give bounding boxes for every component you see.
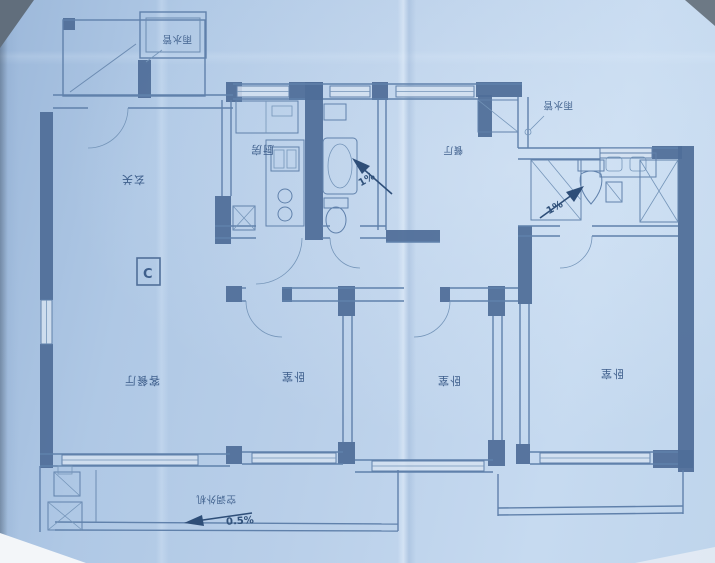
label-rain-pipe-right: 雨水管	[543, 99, 573, 111]
door-arc-kitchen	[256, 238, 302, 284]
door-arc-entry	[88, 108, 128, 148]
label-bedroom-mid: 卧室	[437, 374, 461, 388]
door-arc-bedroom-mid	[414, 301, 450, 337]
toilet-left	[324, 198, 348, 233]
unit-marker-text: C	[143, 267, 153, 282]
label-entry: 玄关	[121, 173, 145, 187]
label-kitchen: 厨房	[250, 143, 274, 156]
slope-arrow-master-bath	[540, 186, 584, 218]
windows-layer	[41, 86, 652, 471]
window-bath-left	[330, 86, 370, 97]
door-arc-bedroom-left	[246, 301, 282, 337]
window-kitchen	[237, 86, 289, 97]
closet-master	[640, 160, 678, 222]
unit-marker-box: C	[137, 258, 160, 285]
kitchen-fixtures	[233, 101, 304, 230]
door-arc-bath-left	[330, 238, 360, 268]
walls-thin-layer	[40, 12, 678, 472]
ac-platform	[48, 466, 82, 530]
window-living-bottom	[62, 455, 198, 465]
label-rain-pipe-left: 雨水管	[162, 33, 192, 45]
window-bed3-bottom	[372, 461, 484, 471]
window-bed2-bottom	[252, 453, 336, 463]
label-living-dining: 客餐厅	[124, 374, 160, 388]
leader-rain-right	[530, 116, 544, 130]
window-room4	[396, 86, 474, 97]
label-dining: 餐厅	[443, 144, 463, 156]
blueprint-photo: C 雨水管 雨水管 厨房 玄关 餐厅 客餐厅 卧室 卧室 卧室 1% 1% 空调…	[0, 0, 715, 563]
floorplan-svg: C 雨水管 雨水管 厨房 玄关 餐厅 客餐厅 卧室 卧室 卧室 1% 1% 空调…	[0, 0, 715, 563]
label-bedroom-left: 卧室	[281, 370, 305, 384]
label-bedroom-right: 卧室	[600, 367, 624, 381]
label-ac-outdoor-unit: 空调外机	[196, 493, 236, 505]
label-slope-balcony: 0.5%	[226, 515, 254, 528]
label-slope-bath-left: 1%	[357, 171, 377, 189]
window-master-bottom	[540, 453, 650, 463]
balcony-right	[498, 470, 683, 516]
bath-left-fixtures	[323, 104, 357, 233]
door-arc-master-bath	[560, 236, 592, 268]
window-left-wall	[41, 300, 52, 344]
